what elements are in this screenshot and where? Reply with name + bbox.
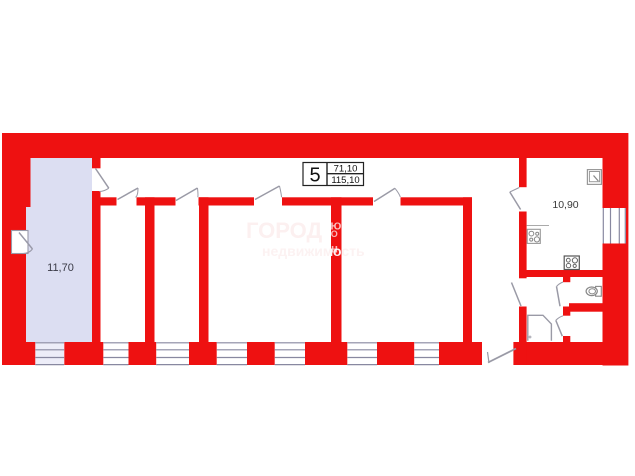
svg-text:н: н	[331, 244, 338, 256]
svg-text:недвижимость: недвижимость	[262, 243, 365, 259]
svg-text:71,10: 71,10	[334, 164, 358, 175]
svg-text:О: О	[331, 229, 338, 239]
svg-text:11,70: 11,70	[47, 262, 74, 274]
svg-text:5: 5	[309, 165, 320, 187]
svg-text:115,10: 115,10	[331, 175, 359, 186]
svg-text:ГОРОД: ГОРОД	[246, 218, 323, 243]
svg-text:10,90: 10,90	[552, 199, 578, 211]
